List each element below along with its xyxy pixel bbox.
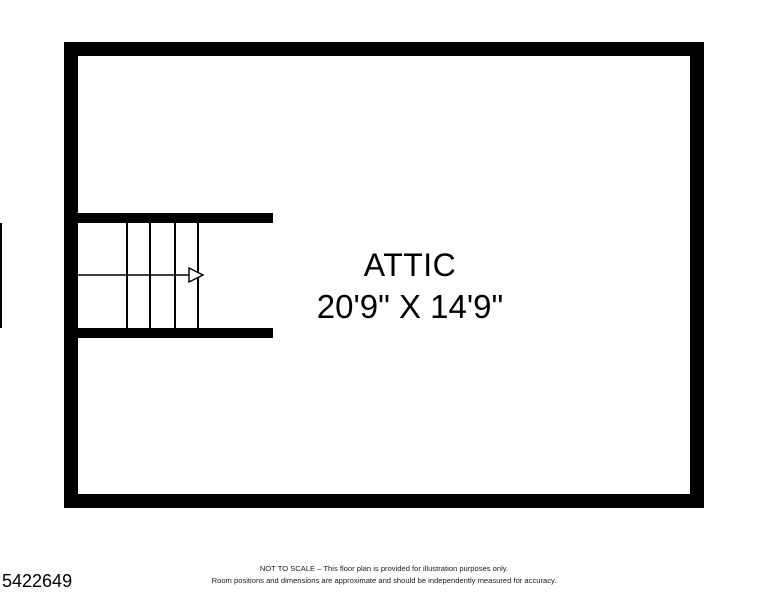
stair-tread-line	[0, 223, 2, 328]
disclaimer: NOT TO SCALE – This floor plan is provid…	[0, 563, 768, 587]
disclaimer-line-2: Room positions and dimensions are approx…	[0, 575, 768, 587]
stair-direction-arrow-icon	[77, 266, 205, 284]
stair-wall-top	[76, 213, 273, 223]
disclaimer-line-1: NOT TO SCALE – This floor plan is provid…	[0, 563, 768, 575]
room-label: ATTIC	[364, 249, 457, 281]
stair-wall-bottom	[76, 328, 273, 338]
floor-plan: ATTIC 20'9" X 14'9"	[0, 0, 768, 594]
room-dimensions: 20'9" X 14'9"	[317, 290, 504, 323]
